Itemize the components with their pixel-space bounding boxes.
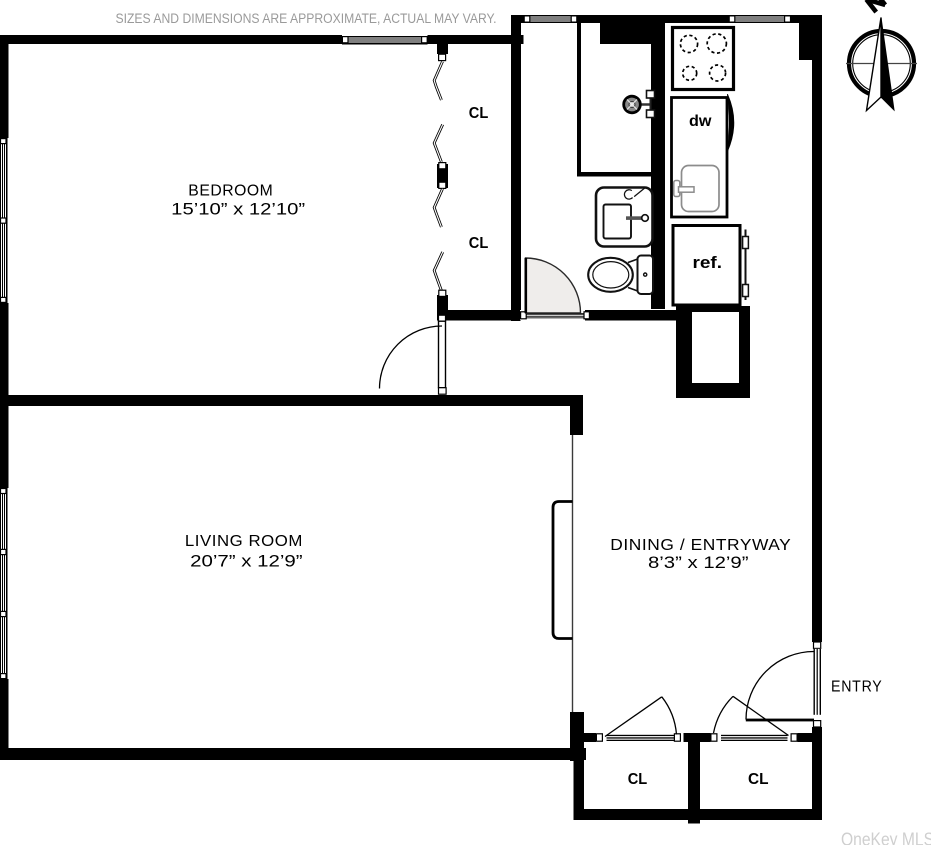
svg-text:SIZES AND DIMENSIONS ARE APPRO: SIZES AND DIMENSIONS ARE APPROXIMATE, AC… bbox=[116, 11, 497, 26]
svg-text:ref.: ref. bbox=[693, 254, 723, 272]
svg-text:CL: CL bbox=[469, 235, 489, 252]
svg-text:ENTRY: ENTRY bbox=[831, 679, 883, 696]
svg-text:DINING / ENTRYWAY: DINING / ENTRYWAY bbox=[610, 537, 791, 554]
svg-text:CL: CL bbox=[628, 771, 648, 788]
svg-text:CL: CL bbox=[469, 105, 489, 122]
svg-text:CL: CL bbox=[748, 771, 769, 788]
svg-text:dw: dw bbox=[689, 113, 712, 130]
svg-text:LIVING ROOM: LIVING ROOM bbox=[185, 533, 303, 550]
svg-text:8’3” x 12’9”: 8’3” x 12’9” bbox=[648, 554, 749, 572]
svg-text:BEDROOM: BEDROOM bbox=[188, 183, 273, 200]
svg-text:15’10” x 12’10”: 15’10” x 12’10” bbox=[171, 201, 305, 219]
svg-text:20’7” x 12’9”: 20’7” x 12’9” bbox=[190, 552, 303, 570]
svg-text:OneKey MLS: OneKey MLS bbox=[841, 829, 931, 845]
